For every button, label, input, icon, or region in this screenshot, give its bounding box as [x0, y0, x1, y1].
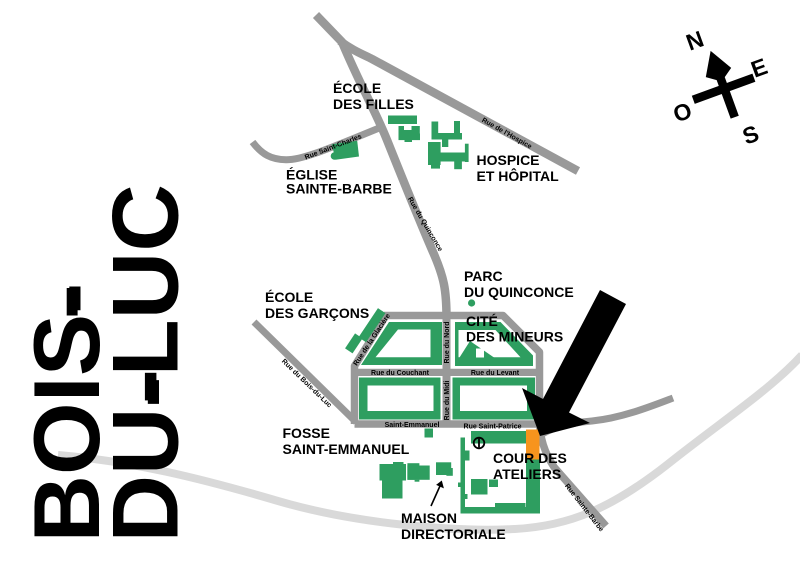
svg-text:HOSPICE: HOSPICE: [477, 152, 540, 168]
svg-text:COUR DES: COUR DES: [493, 450, 567, 466]
svg-text:DIRECTORIALE: DIRECTORIALE: [401, 526, 506, 542]
svg-text:ET HÔPITAL: ET HÔPITAL: [477, 167, 560, 184]
svg-text:MAISON: MAISON: [401, 510, 457, 526]
svg-text:Rue du Quinconce: Rue du Quinconce: [406, 196, 443, 253]
svg-text:ÉCOLE: ÉCOLE: [265, 289, 313, 305]
svg-text:O: O: [670, 97, 696, 128]
svg-text:N: N: [683, 25, 708, 55]
svg-text:PARC: PARC: [464, 268, 503, 284]
svg-text:ATELIERS: ATELIERS: [493, 466, 561, 482]
svg-text:S: S: [739, 120, 762, 150]
svg-text:DES FILLES: DES FILLES: [333, 96, 414, 112]
svg-text:DES GARÇONS: DES GARÇONS: [265, 305, 369, 321]
svg-text:DU QUINCONCE: DU QUINCONCE: [464, 284, 574, 300]
svg-text:Rue du Bois-du-Luc: Rue du Bois-du-Luc: [280, 358, 333, 409]
svg-text:Rue du Couchant: Rue du Couchant: [371, 370, 430, 377]
svg-text:ÉCOLE: ÉCOLE: [333, 80, 381, 96]
svg-text:CITÉ: CITÉ: [466, 313, 498, 329]
svg-text:Rue de l'Hospice: Rue de l'Hospice: [480, 117, 532, 151]
svg-text:SAINTE-BARBE: SAINTE-BARBE: [286, 181, 392, 197]
svg-text:SAINT-EMMANUEL: SAINT-EMMANUEL: [283, 441, 410, 457]
svg-text:DU-LUC: DU-LUC: [93, 184, 198, 542]
svg-text:Rue du Midi: Rue du Midi: [444, 381, 451, 421]
svg-text:DES MINEURS: DES MINEURS: [466, 329, 563, 345]
svg-text:Rue du Levant: Rue du Levant: [471, 370, 520, 377]
svg-text:Rue Saint-Patrice: Rue Saint-Patrice: [464, 424, 522, 431]
svg-text:Rue du Nord: Rue du Nord: [444, 322, 451, 364]
svg-text:Saint-Emmanuel: Saint-Emmanuel: [385, 422, 440, 429]
svg-text:FOSSE: FOSSE: [283, 425, 330, 441]
